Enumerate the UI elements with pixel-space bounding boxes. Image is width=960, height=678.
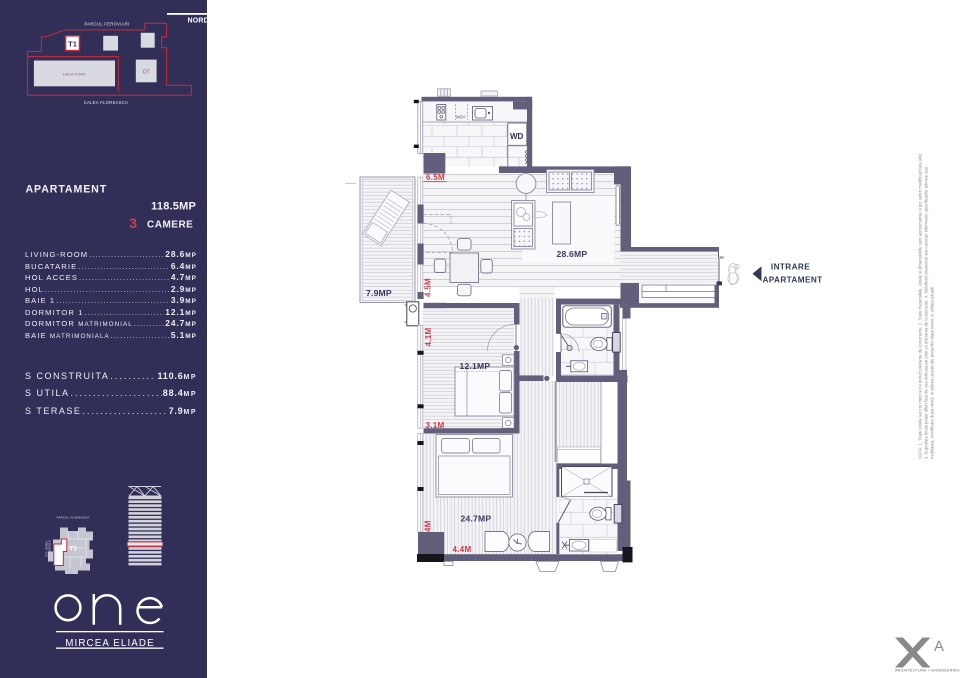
- svg-text:PARCUL FEROVIARI: PARCUL FEROVIARI: [84, 22, 129, 27]
- svg-text:118.5MP: 118.5MP: [151, 201, 196, 213]
- svg-text:NOTA: 1. Toate cotele sunt in: NOTA: 1. Toate cotele sunt in metri si n…: [918, 153, 923, 459]
- svg-text:T1: T1: [70, 546, 78, 553]
- svg-text:MSV: MSV: [456, 115, 465, 120]
- svg-text:HALA FORD: HALA FORD: [63, 73, 86, 77]
- svg-text:12.1MP: 12.1MP: [460, 361, 491, 371]
- svg-text:mobilarea, modificate dupa nev: mobilarea, modificate dupa nevoi, in sti…: [930, 286, 935, 459]
- svg-text:3. Suprafata finala poate dife: 3. Suprafata finala poate diferi fata de…: [924, 166, 929, 459]
- svg-text:28.6MP: 28.6MP: [557, 249, 588, 259]
- svg-text:WD: WD: [510, 132, 524, 141]
- svg-text:4.4M: 4.4M: [453, 545, 472, 554]
- svg-text:A: A: [934, 638, 944, 655]
- svg-text:NORD: NORD: [188, 18, 208, 25]
- svg-text:3: 3: [129, 216, 137, 231]
- svg-text:MIRCEA ELIADE: MIRCEA ELIADE: [65, 638, 154, 649]
- svg-text:OT: OT: [143, 70, 150, 76]
- svg-text:6.5M: 6.5M: [426, 173, 445, 182]
- svg-text:T1: T1: [68, 40, 78, 49]
- svg-text:PARCUL FLOREASCA: PARCUL FLOREASCA: [57, 516, 90, 520]
- svg-text:INTRARE: INTRARE: [771, 263, 810, 272]
- svg-text:CAMERE: CAMERE: [147, 220, 193, 231]
- svg-text:4.1M: 4.1M: [424, 327, 433, 346]
- svg-text:APARTAMENT: APARTAMENT: [26, 184, 108, 196]
- svg-text:APARTAMENT: APARTAMENT: [762, 276, 822, 285]
- svg-text:7.9MP: 7.9MP: [366, 288, 392, 298]
- svg-text:VACARESCU: VACARESCU: [48, 540, 52, 557]
- svg-text:24.7MP: 24.7MP: [461, 514, 492, 524]
- svg-text:STR. BARBU: STR. BARBU: [45, 541, 49, 557]
- svg-text:CALEA FLOREASCA: CALEA FLOREASCA: [84, 100, 129, 105]
- svg-text:ARCHITECTURE + ENGINEERING: ARCHITECTURE + ENGINEERING: [895, 669, 960, 673]
- svg-text:4M: 4M: [424, 520, 433, 532]
- svg-text:4.5M: 4.5M: [424, 278, 433, 297]
